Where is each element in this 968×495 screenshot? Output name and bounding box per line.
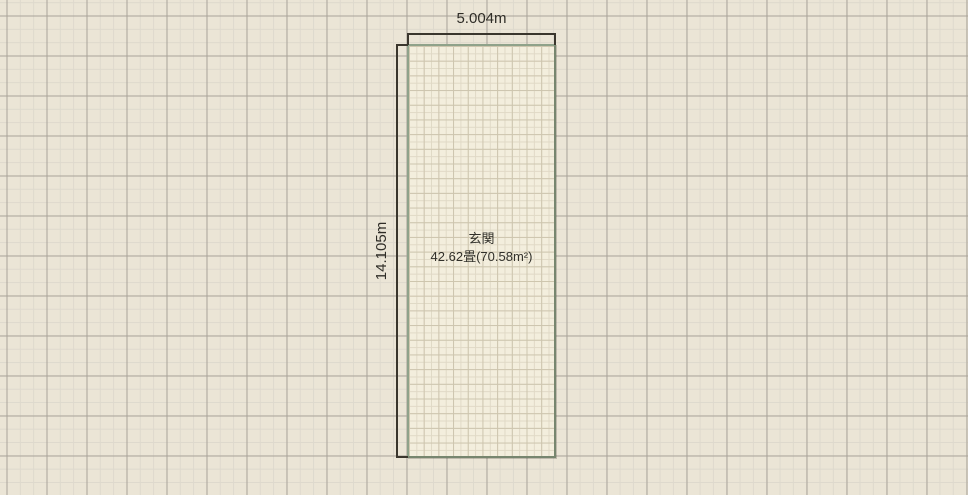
height-dimension-line: [396, 44, 408, 458]
room-genkan[interactable]: 玄関 42.62畳(70.58m²): [407, 44, 556, 458]
height-dimension-label: 14.105m: [373, 210, 389, 292]
room-label: 玄関 42.62畳(70.58m²): [431, 230, 533, 266]
room-name: 玄関: [431, 230, 533, 248]
floorplan-canvas[interactable]: 玄関 42.62畳(70.58m²) 5.004m 14.105m: [0, 0, 968, 495]
width-dimension-line: [407, 33, 556, 45]
room-area: 42.62畳(70.58m²): [431, 248, 533, 266]
width-dimension-label: 5.004m: [407, 10, 556, 28]
